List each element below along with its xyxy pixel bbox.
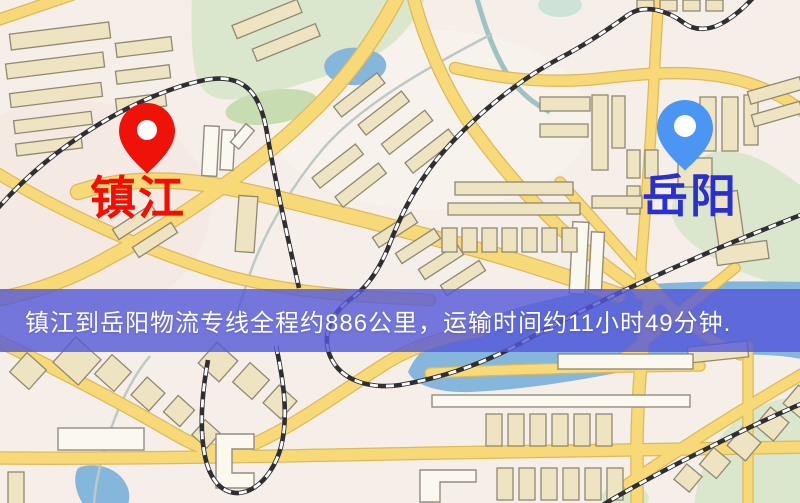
origin-city-label: 镇江 [90,175,186,221]
destination-city-label: 岳阳 [642,173,738,219]
map-canvas [0,0,800,503]
route-banner: 镇江到岳阳物流专线全程约886公里，运输时间约11小时49分钟. [0,289,800,352]
pin-hole [137,120,157,140]
map-view: 镇江 岳阳 镇江到岳阳物流专线全程约886公里，运输时间约11小时49分钟. [0,0,800,503]
pin-hole [674,115,696,137]
route-banner-text: 镇江到岳阳物流专线全程约886公里，运输时间约11小时49分钟. [25,303,731,338]
